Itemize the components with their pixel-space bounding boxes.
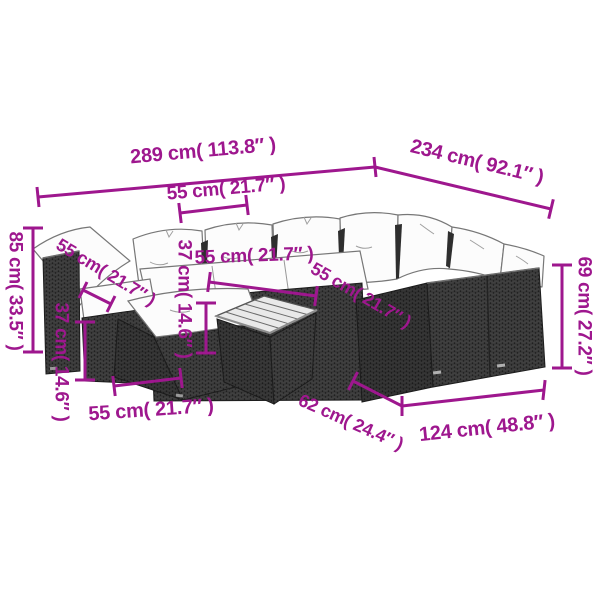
dim-label-seat-width-mid: 55 cm( 21.7″ ) <box>194 244 314 267</box>
sofa-set-line-drawing <box>0 0 600 600</box>
dim-label-back-height-right: 69 cm( 27.2″ ) <box>575 257 594 376</box>
right-sofa <box>356 268 545 402</box>
dim-label-total-height: 85 cm( 33.5″ ) <box>6 232 25 351</box>
product-dimension-diagram: 289 cm( 113.8″ ) 234 cm( 92.1″ ) 55 cm( … <box>0 0 600 600</box>
dim-label-table-height-mid: 37 cm( 14.6″ ) <box>175 240 194 359</box>
dim-label-seat-height-left: 37 cm( 14.6″ ) <box>52 303 71 422</box>
